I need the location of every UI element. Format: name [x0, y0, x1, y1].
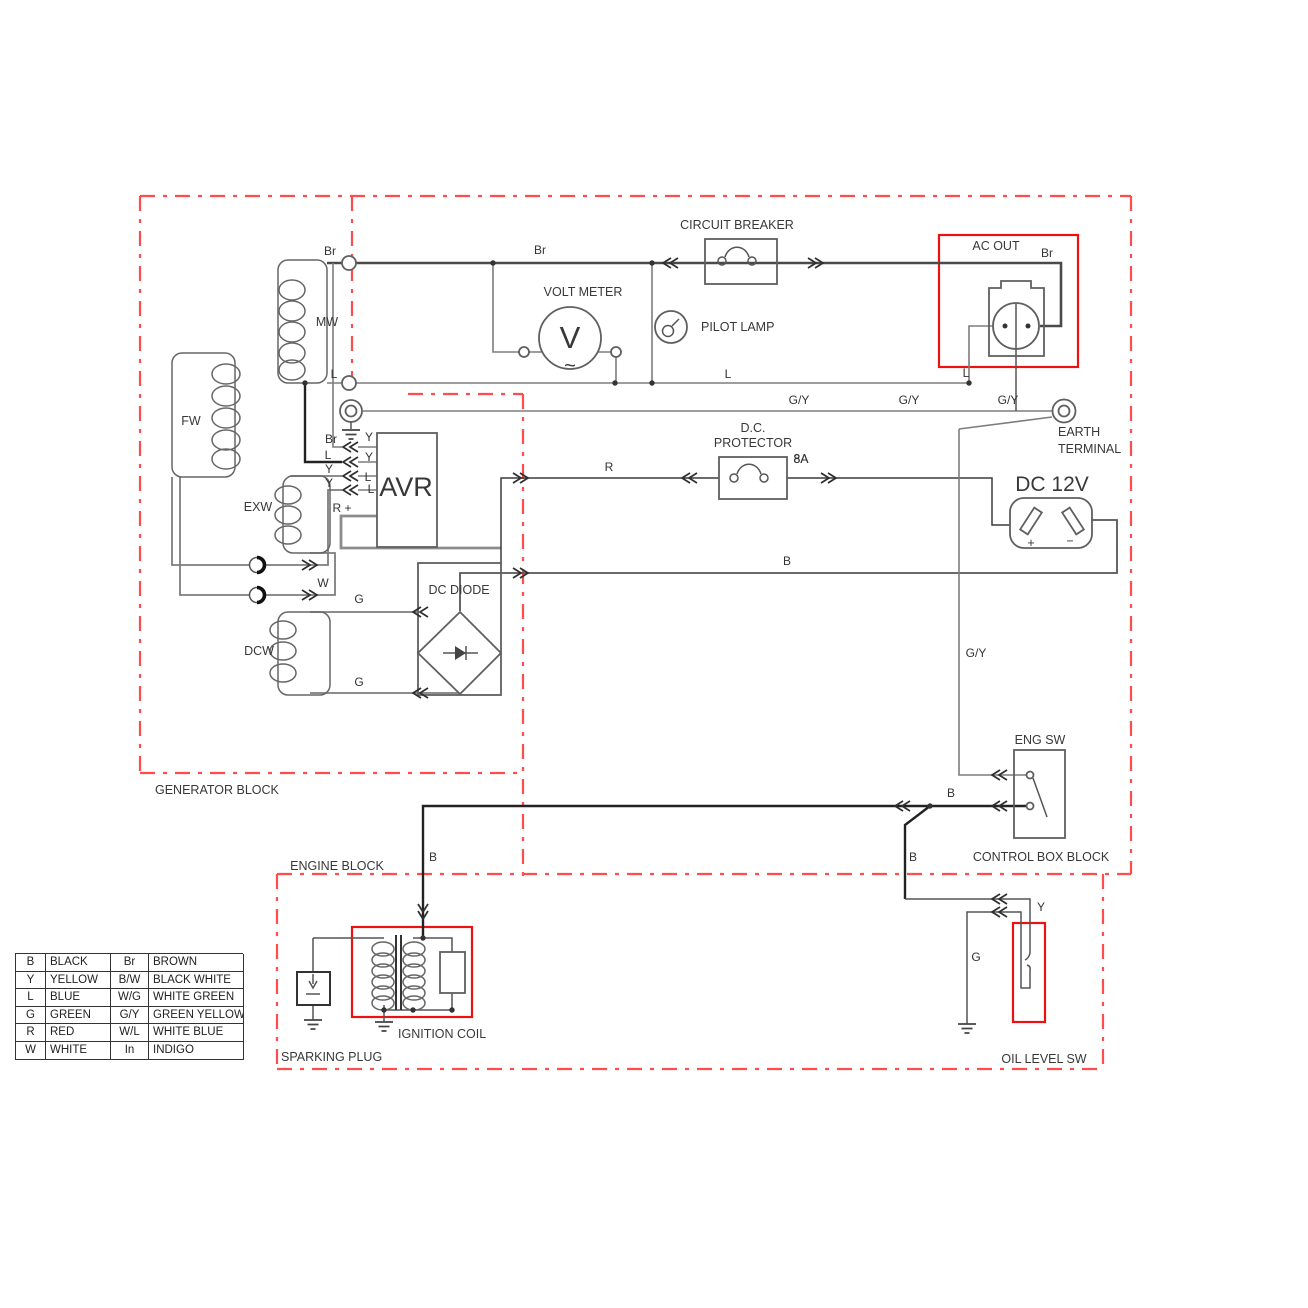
fw-coil-label: FW	[181, 414, 201, 428]
junction-dot	[410, 1007, 415, 1012]
wire-label: G/Y	[789, 393, 810, 407]
pilot-lamp-symbol	[655, 311, 687, 343]
wire-label: G	[354, 675, 363, 689]
connector-arrow-icon	[343, 471, 358, 481]
legend-color-code: Br	[111, 954, 149, 972]
wire-label: G/Y	[899, 393, 920, 407]
oil-level-sw-highlight-box	[1013, 923, 1045, 1022]
legend-color-name: RED	[46, 1024, 111, 1042]
legend-color-code: G/Y	[111, 1007, 149, 1025]
wire-label: B	[909, 850, 917, 864]
circuit-breaker-label: CIRCUIT BREAKER	[680, 218, 794, 232]
legend-color-name: WHITE BLUE	[149, 1024, 244, 1042]
wire-color-legend: BBLACKBrBROWNYYELLOWB/WBLACK WHITELBLUEW…	[15, 953, 243, 1060]
exw-coil-label: EXW	[244, 500, 273, 514]
pilot-lamp-label: PILOT LAMP	[701, 320, 774, 334]
legend-color-code: Y	[16, 972, 46, 990]
ground-icon	[375, 1022, 393, 1031]
generator-earth-terminal	[340, 400, 362, 439]
wire-label: G/Y	[966, 646, 987, 660]
connector-arrow-icon	[343, 457, 358, 467]
schematic-canvas: CIRCUIT BREAKER VOLT METER V ~ PILOT LAM…	[0, 0, 1308, 1308]
wire-b-engine	[423, 806, 1026, 938]
wire-label: R +	[332, 501, 351, 515]
wire-r-dc	[501, 478, 1010, 563]
engine-block-label: ENGINE BLOCK	[290, 859, 384, 873]
br-terminal	[342, 256, 356, 270]
legend-color-name: INDIGO	[149, 1042, 244, 1060]
legend-color-code: W/L	[111, 1024, 149, 1042]
earth-terminal-symbol	[1053, 400, 1076, 423]
legend-color-name: GREEN	[46, 1007, 111, 1025]
mw-coil-label: MW	[316, 315, 338, 329]
earth-terminal-label-1: EARTH	[1058, 425, 1100, 439]
wire-label: Br	[1041, 246, 1053, 260]
connector-arrow-icon	[343, 485, 358, 495]
wire-label: B	[947, 786, 955, 800]
wire-label: 8A	[794, 452, 809, 466]
legend-color-code: W	[16, 1042, 46, 1060]
dc12v-socket	[1010, 498, 1092, 548]
junction-dot	[649, 260, 654, 265]
wires	[172, 263, 1117, 1024]
dc12v-minus: −	[1066, 534, 1073, 548]
junction-dot	[966, 380, 971, 385]
legend-color-code: In	[111, 1042, 149, 1060]
bullet-connector-icon	[250, 558, 265, 573]
wire-label: L	[368, 482, 375, 496]
wire-mw-black-to-avr	[305, 383, 342, 462]
junction-dot	[302, 380, 307, 385]
earth-terminal-label-2: TERMINAL	[1058, 442, 1121, 456]
dc-diode-label: DC DIODE	[428, 583, 489, 597]
wire-label: Y	[325, 462, 333, 476]
wire-label: Y	[365, 430, 373, 444]
legend-color-name: BLUE	[46, 989, 111, 1007]
bullet-connector-icon	[250, 588, 265, 603]
wire-label: G	[354, 592, 363, 606]
components	[172, 239, 1092, 1033]
dc-protector-label-1: D.C.	[741, 421, 766, 435]
wire-label: L	[325, 448, 332, 462]
wire-label: Y	[365, 450, 373, 464]
ground-icon	[342, 430, 360, 439]
connector-arrow-icon	[343, 442, 358, 452]
connector-arrows	[302, 258, 1007, 919]
wire-br-main	[327, 263, 1061, 326]
volt-meter-v: V	[560, 320, 581, 355]
legend-color-code: B	[16, 954, 46, 972]
avr-label: AVR	[379, 472, 433, 502]
legend-color-name: YELLOW	[46, 972, 111, 990]
eng-sw-label: ENG SW	[1015, 733, 1066, 747]
ignition-coil-highlight-box	[352, 927, 472, 1017]
dcw-coil-label: DCW	[244, 644, 274, 658]
legend-color-code: R	[16, 1024, 46, 1042]
junction-dot	[420, 935, 425, 940]
wire-label: G	[971, 950, 980, 964]
legend-color-name: BROWN	[149, 954, 244, 972]
wire-labels: BrBrBrLLLG/YG/YG/YG/YRR +BBBBWGGGY8ABrLY…	[317, 243, 1053, 964]
oil-level-sw-label: OIL LEVEL SW	[1001, 1052, 1086, 1066]
legend-color-name: BLACK WHITE	[149, 972, 244, 990]
wire-label: Y	[325, 476, 333, 490]
block-boundaries	[140, 196, 1131, 1069]
junction-dot	[490, 260, 495, 265]
legend-color-code: W/G	[111, 989, 149, 1007]
ground-icon	[958, 1024, 976, 1033]
legend-color-code: B/W	[111, 972, 149, 990]
wire-label: L	[725, 367, 732, 381]
sparking-plug-label: SPARKING PLUG	[281, 1050, 382, 1064]
ac-out-socket	[989, 281, 1044, 411]
exw-coil	[275, 476, 330, 553]
dc12v-label: DC 12V	[1015, 473, 1089, 496]
eng-sw-symbol	[1014, 750, 1065, 838]
junction-dots	[302, 260, 971, 1012]
wire-label: R	[605, 460, 614, 474]
wire-label: L	[963, 366, 970, 380]
volt-meter-label: VOLT METER	[544, 285, 623, 299]
legend-color-name: WHITE	[46, 1042, 111, 1060]
generator-block-label: GENERATOR BLOCK	[155, 783, 280, 797]
wire-fw-tail2	[180, 477, 249, 595]
l-terminal	[342, 376, 356, 390]
wire-avr-r-plus	[341, 516, 501, 548]
dc-protector-symbol	[719, 457, 787, 499]
dc-protector-label-2: PROTECTOR	[714, 436, 792, 450]
wire-label: W	[317, 576, 329, 590]
junction-dot	[927, 803, 932, 808]
wire-label: B	[429, 850, 437, 864]
wire-fw-tail1	[172, 477, 249, 565]
legend-color-code: G	[16, 1007, 46, 1025]
circuit-breaker-symbol	[705, 239, 777, 284]
sparking-plug-symbol	[297, 972, 330, 1029]
wiring-diagram: CIRCUIT BREAKER VOLT METER V ~ PILOT LAM…	[0, 0, 1308, 1308]
wire-label: L	[331, 367, 338, 381]
wire-label: Br	[324, 244, 336, 258]
legend-color-code: L	[16, 989, 46, 1007]
wire-label: B	[783, 554, 791, 568]
ac-out-label: AC OUT	[972, 239, 1020, 253]
legend-color-name: GREEN YELLOW	[149, 1007, 244, 1025]
control-box-block-label: CONTROL BOX BLOCK	[973, 850, 1110, 864]
junction-dot	[649, 380, 654, 385]
wire-label: Y	[1037, 900, 1045, 914]
junction-dot	[449, 1007, 454, 1012]
wire-br-tap-to-avr	[333, 263, 342, 447]
wire-label: Br	[534, 243, 546, 257]
legend-color-name: BLACK	[46, 954, 111, 972]
wire-label: Br	[325, 432, 337, 446]
ignition-coil-label: IGNITION COIL	[398, 1027, 486, 1041]
junction-dot	[612, 380, 617, 385]
wire-label: G/Y	[998, 393, 1019, 407]
wire-oil-level	[905, 899, 1030, 1024]
junction-dot	[381, 1007, 386, 1012]
dcw-coil	[270, 612, 330, 695]
dc12v-plus: +	[1027, 536, 1034, 550]
legend-color-name: WHITE GREEN	[149, 989, 244, 1007]
volt-meter-ac: ~	[564, 355, 576, 377]
ground-icon	[304, 1020, 322, 1029]
